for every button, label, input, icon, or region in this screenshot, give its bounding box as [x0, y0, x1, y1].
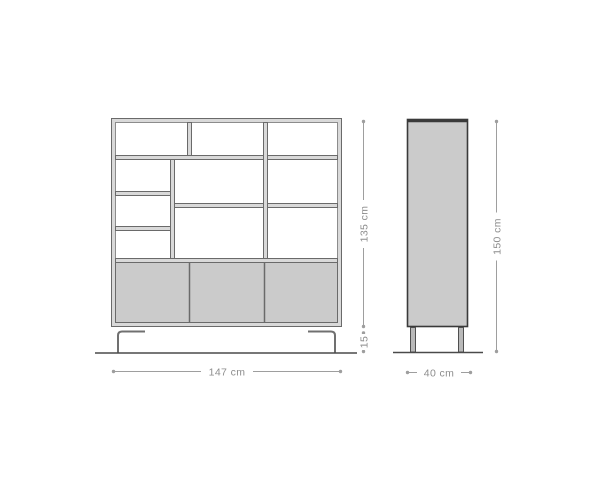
door-section [116, 263, 338, 323]
depth-label: 40 cm [424, 367, 455, 379]
dimension-depth: 40 cm [406, 366, 472, 379]
body-height-label: 135 cm [358, 206, 370, 243]
dimension-total-height: 150 cm [490, 120, 503, 353]
door-panels [116, 263, 338, 323]
dim-arrow [495, 120, 498, 123]
shelf-left-upper [116, 192, 175, 196]
front-leg-left [118, 332, 145, 353]
divider-left-column [171, 160, 175, 259]
dim-arrow [112, 370, 115, 373]
dimension-body-height: 135 cm [357, 120, 370, 328]
width-label: 147 cm [209, 366, 246, 378]
dim-arrow [362, 120, 365, 123]
side-leg-back [459, 328, 464, 353]
furniture-drawing-svg: 135 cm 15 147 cm [0, 0, 600, 500]
shelf-right-middle [175, 204, 338, 208]
dim-arrow [469, 371, 472, 374]
dimension-diagram: 135 cm 15 147 cm [0, 0, 600, 500]
shelf-full-width [116, 156, 338, 160]
front-view [95, 119, 357, 354]
shelf-above-doors [116, 259, 338, 263]
dimension-width: 147 cm [112, 365, 342, 378]
dim-arrow [495, 350, 498, 353]
divider-top-row [188, 123, 192, 156]
side-view [393, 120, 483, 353]
side-body [408, 120, 468, 327]
dim-arrow [406, 371, 409, 374]
total-height-label: 150 cm [491, 218, 503, 255]
dim-arrow [362, 350, 365, 353]
shelf-left-lower [116, 227, 175, 231]
divider-center [264, 123, 268, 259]
side-legs [411, 328, 464, 353]
dim-arrow [339, 370, 342, 373]
front-leg-right [308, 332, 335, 353]
side-leg-front [411, 328, 416, 353]
dim-arrow [362, 325, 365, 328]
base-height-label: 15 [358, 336, 370, 348]
front-legs [118, 332, 335, 353]
dimension-base-height: 15 [358, 331, 370, 353]
